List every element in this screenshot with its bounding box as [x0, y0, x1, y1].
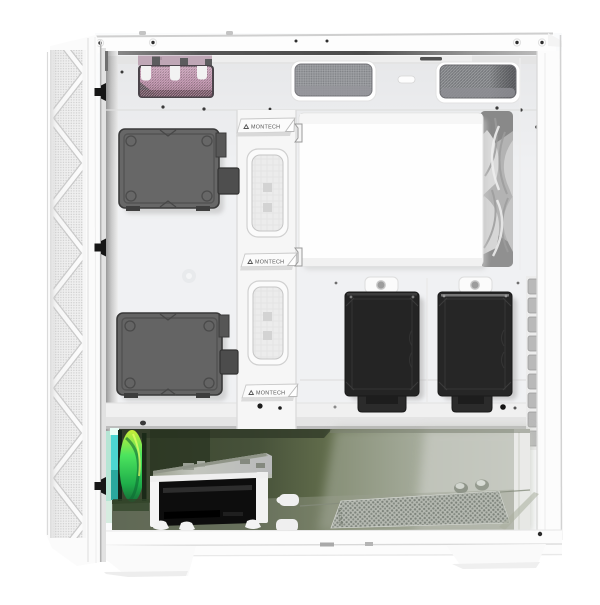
- svg-text:MONTECH: MONTECH: [251, 125, 280, 131]
- svg-text:MONTECH: MONTECH: [255, 260, 284, 266]
- svg-text:MONTECH: MONTECH: [256, 391, 285, 397]
